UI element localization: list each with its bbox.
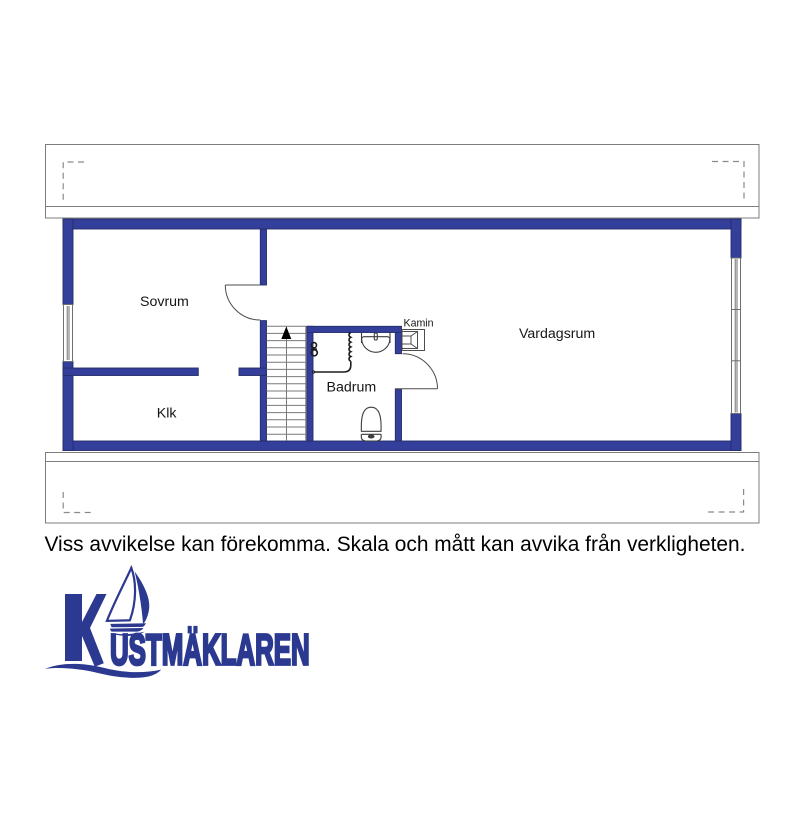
svg-text:Viss avvikelse kan förekomma.: Viss avvikelse kan förekomma. Skala och … <box>45 533 746 556</box>
svg-text:Badrum: Badrum <box>327 380 377 396</box>
svg-text:USTMÄKLAREN: USTMÄKLAREN <box>110 624 310 674</box>
svg-text:Kamin: Kamin <box>404 317 434 329</box>
svg-text:Vardagsrum: Vardagsrum <box>519 326 595 342</box>
svg-text:Sovrum: Sovrum <box>140 294 189 310</box>
svg-text:Klk: Klk <box>157 405 178 421</box>
